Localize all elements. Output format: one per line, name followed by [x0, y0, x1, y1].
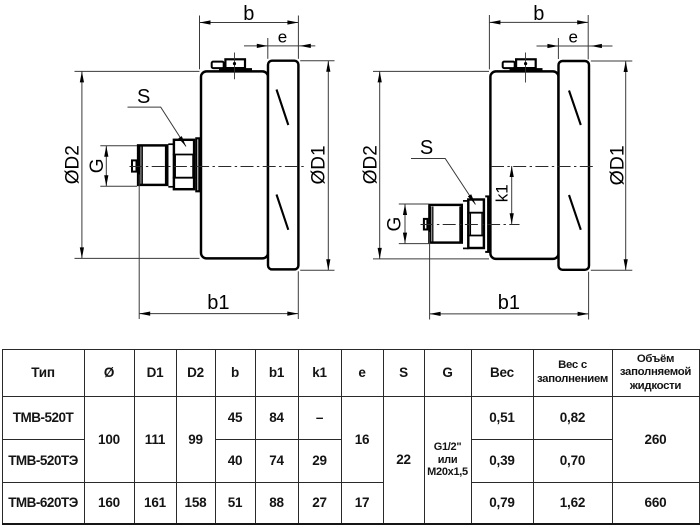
svg-text:e: e: [278, 27, 287, 46]
svg-text:b1: b1: [207, 292, 229, 314]
svg-text:S: S: [137, 86, 150, 108]
svg-text:ØD2: ØD2: [360, 145, 381, 184]
svg-text:b1: b1: [498, 292, 520, 314]
svg-text:S: S: [420, 137, 433, 159]
svg-text:b: b: [243, 3, 254, 25]
svg-text:ØD1: ØD1: [606, 145, 628, 185]
svg-text:k1: k1: [493, 184, 512, 202]
svg-text:ØD1: ØD1: [308, 145, 329, 184]
svg-text:b: b: [533, 3, 544, 25]
svg-text:e: e: [568, 28, 577, 47]
svg-text:G: G: [385, 217, 406, 232]
svg-text:ØD2: ØD2: [63, 145, 84, 184]
svg-text:G: G: [87, 159, 108, 174]
